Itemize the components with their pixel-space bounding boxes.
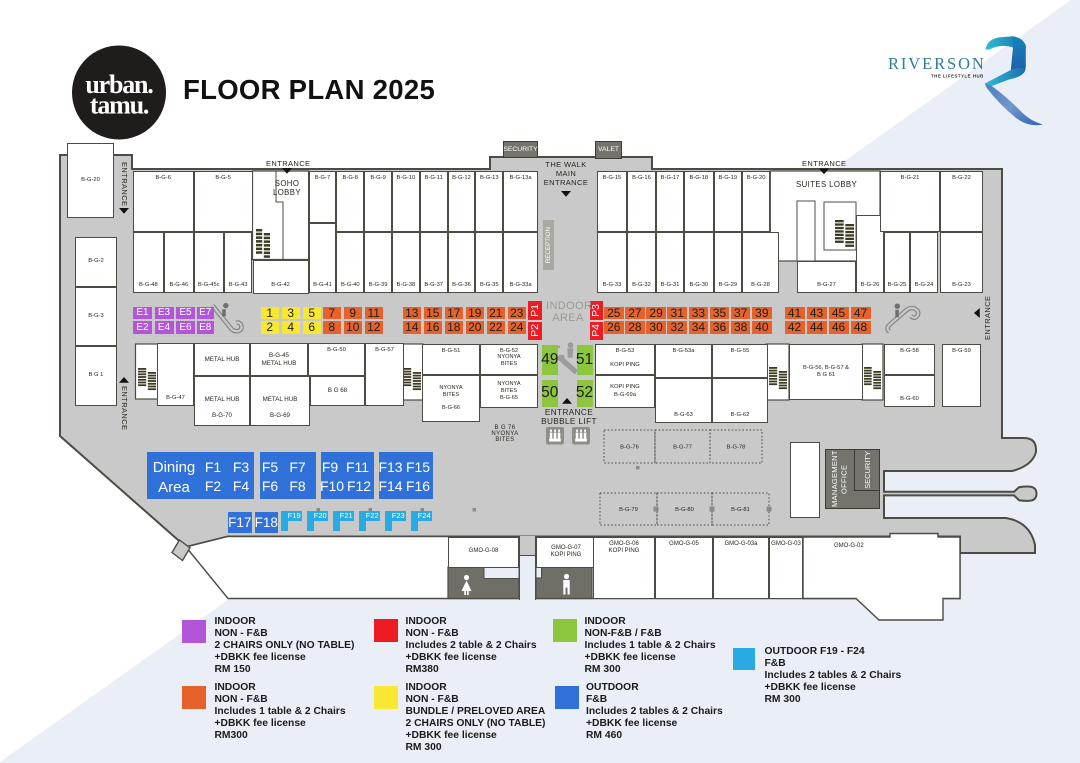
svg-text:B-G-80: B-G-80: [675, 507, 694, 513]
svg-text:tamu.: tamu.: [90, 91, 149, 120]
svg-text:RIVERSON: RIVERSON: [888, 54, 986, 73]
svg-text:B-G-76: B-G-76: [620, 445, 639, 451]
svg-text:B-G-81: B-G-81: [731, 507, 750, 513]
svg-text:B-G-77: B-G-77: [673, 445, 692, 451]
svg-text:B-G-79: B-G-79: [619, 507, 638, 513]
svg-text:B-G-78: B-G-78: [727, 445, 746, 451]
svg-text:THE LIFESTYLE HUB: THE LIFESTYLE HUB: [931, 74, 984, 79]
